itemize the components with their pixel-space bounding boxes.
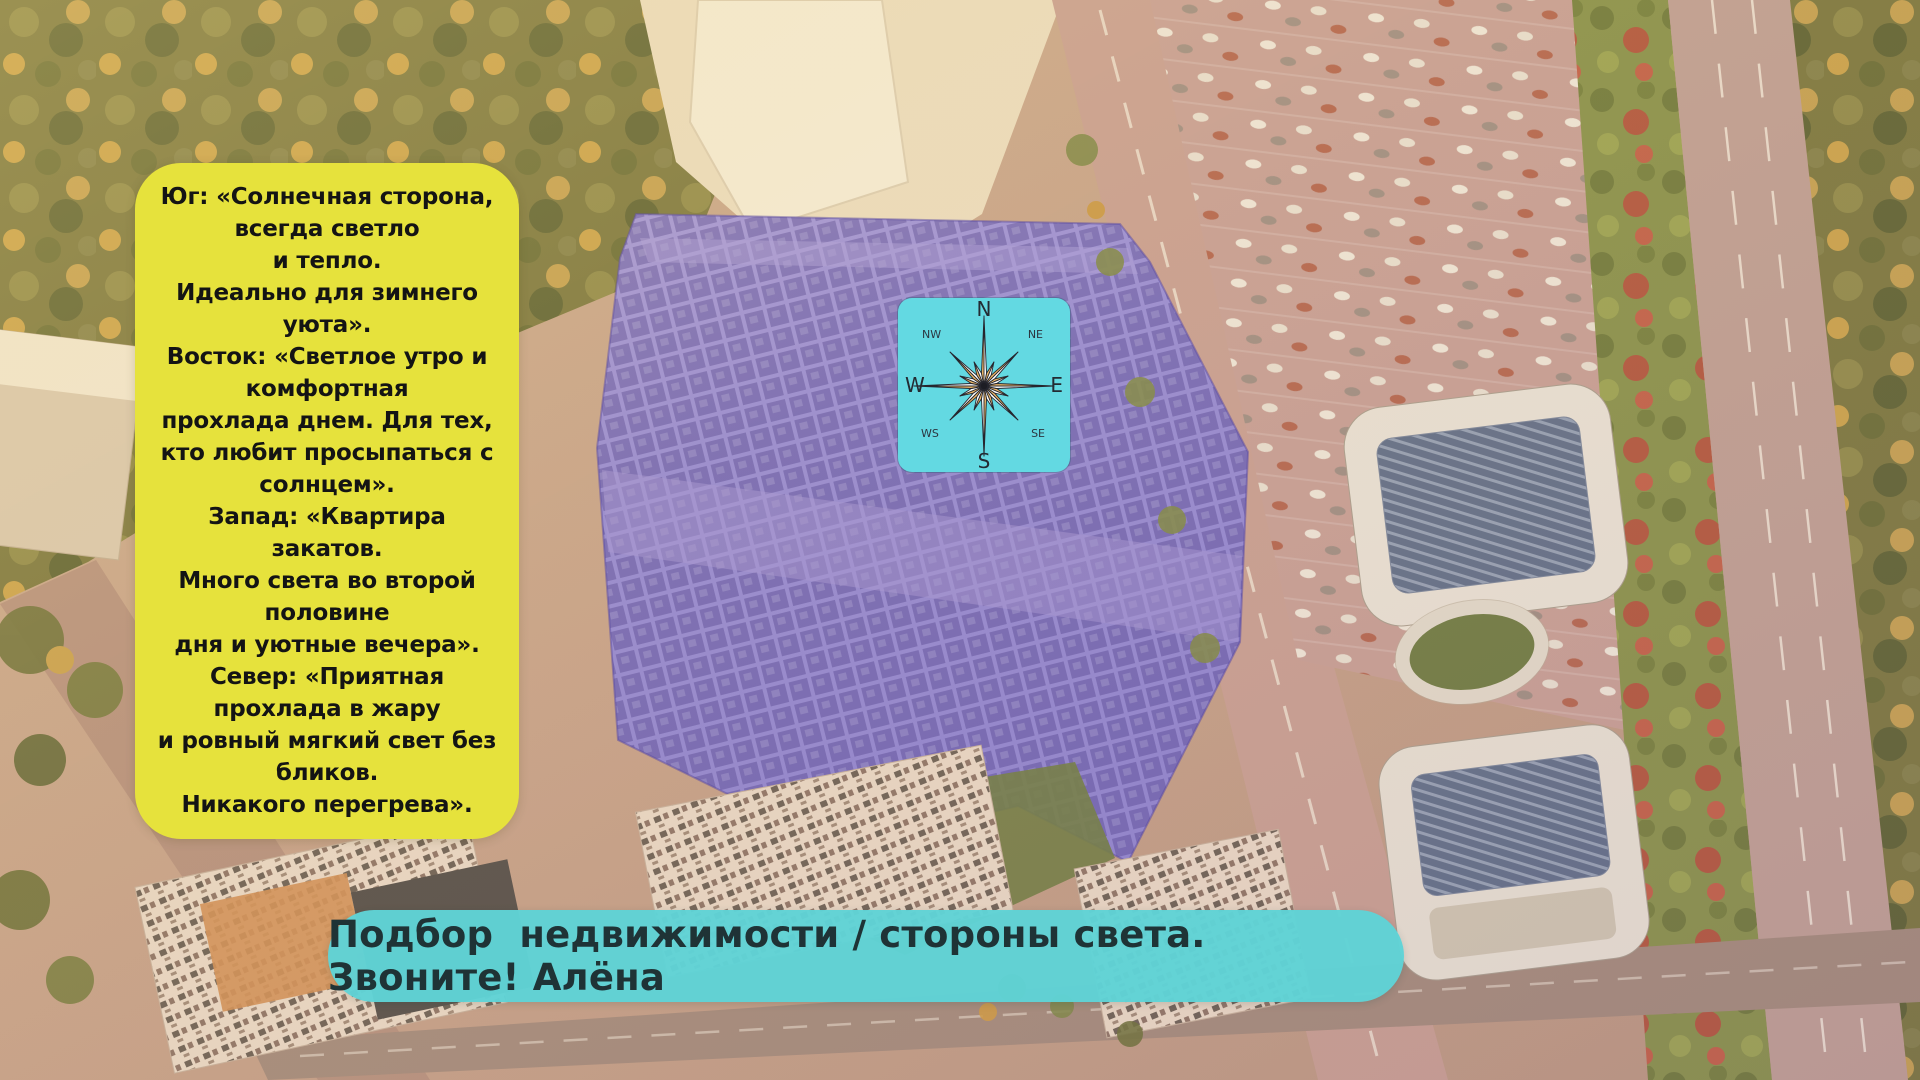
contact-banner: Подбор недвижимости / стороны света. Зво… [328, 910, 1404, 1002]
compass-label-east: E [1050, 375, 1063, 395]
contact-banner-text: Подбор недвижимости / стороны света. Зво… [328, 913, 1404, 999]
compass-label-southwest: WS [921, 428, 939, 439]
compass-label-northwest: NW [922, 329, 941, 340]
orientation-info-card: Юг: «Солнечная сторона, всегда светло и … [135, 163, 519, 839]
compass-label-south: S [978, 451, 991, 471]
real-estate-poster: Юг: «Солнечная сторона, всегда светло и … [0, 0, 1920, 1080]
compass-label-southeast: SE [1031, 428, 1045, 439]
orientation-info-text: Юг: «Солнечная сторона, всегда светло и … [155, 181, 499, 821]
compass-label-northeast: NE [1028, 329, 1043, 340]
compass-label-west: W [905, 375, 925, 395]
compass-label-north: N [977, 299, 992, 319]
compass-rose-card: N S W E NW NE WS SE [898, 298, 1070, 472]
